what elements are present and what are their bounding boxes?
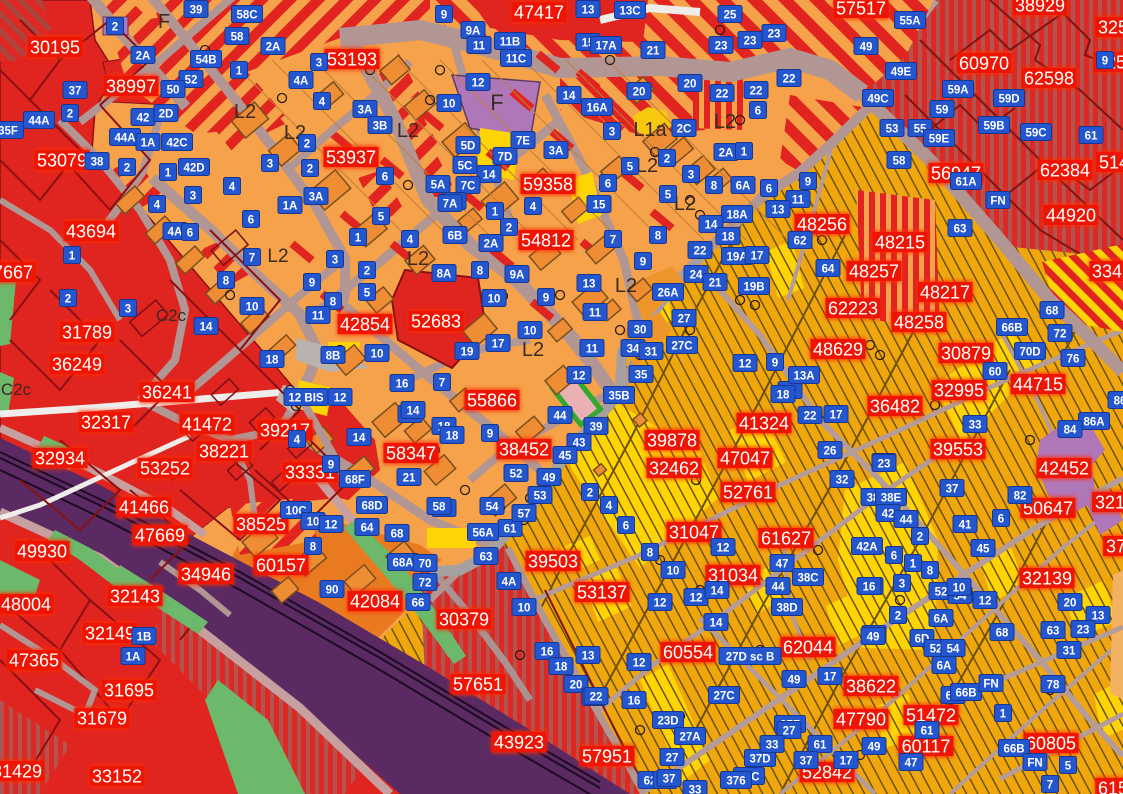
svg-text:53: 53 [886, 124, 899, 136]
svg-text:68: 68 [391, 529, 404, 541]
svg-text:49: 49 [860, 42, 873, 54]
svg-text:53: 53 [534, 491, 547, 503]
svg-text:55A: 55A [899, 16, 920, 28]
svg-text:31695: 31695 [104, 681, 154, 701]
svg-text:FN: FN [983, 679, 998, 691]
svg-text:6A: 6A [937, 661, 952, 673]
svg-text:44920: 44920 [1046, 206, 1096, 226]
svg-text:47417: 47417 [514, 3, 564, 23]
svg-text:18: 18 [266, 355, 279, 367]
svg-text:22: 22 [783, 74, 796, 86]
svg-text:376: 376 [726, 776, 745, 788]
svg-text:47365: 47365 [9, 651, 59, 671]
svg-text:10: 10 [443, 99, 456, 111]
svg-text:1: 1 [355, 233, 362, 245]
svg-text:49: 49 [788, 675, 801, 687]
svg-text:32139: 32139 [1022, 569, 1072, 589]
svg-text:2D: 2D [159, 109, 174, 121]
svg-text:5D: 5D [461, 141, 476, 153]
svg-text:35B: 35B [608, 391, 629, 403]
svg-text:36249: 36249 [52, 355, 102, 375]
svg-text:27: 27 [666, 753, 679, 765]
svg-text:10: 10 [488, 294, 501, 306]
svg-text:7A: 7A [443, 199, 458, 211]
svg-text:12: 12 [633, 658, 646, 670]
svg-text:60970: 60970 [959, 54, 1009, 74]
svg-text:2C: 2C [677, 124, 692, 136]
svg-text:13: 13 [582, 5, 595, 17]
svg-text:44A: 44A [28, 116, 49, 128]
svg-text:19: 19 [461, 347, 474, 359]
svg-text:52761: 52761 [723, 483, 773, 503]
svg-text:5C: 5C [458, 161, 473, 173]
svg-text:6: 6 [248, 215, 254, 227]
svg-text:1: 1 [165, 168, 172, 180]
svg-text:58: 58 [893, 156, 906, 168]
svg-text:3: 3 [125, 304, 131, 316]
svg-text:2: 2 [364, 266, 370, 278]
svg-text:2: 2 [112, 22, 118, 34]
svg-text:1A: 1A [126, 652, 141, 664]
svg-text:39503: 39503 [528, 552, 578, 572]
svg-text:45: 45 [977, 544, 990, 556]
svg-text:9: 9 [328, 460, 334, 472]
svg-text:45: 45 [559, 451, 572, 463]
svg-text:32149: 32149 [85, 624, 135, 644]
svg-text:7667: 7667 [0, 263, 33, 283]
svg-text:14: 14 [563, 91, 576, 103]
svg-text:9: 9 [441, 10, 447, 22]
svg-text:20: 20 [570, 680, 583, 692]
svg-text:68A: 68A [392, 558, 413, 570]
svg-text:6A: 6A [736, 181, 751, 193]
svg-text:8B: 8B [326, 351, 341, 363]
svg-text:15: 15 [593, 200, 606, 212]
svg-text:10: 10 [518, 603, 531, 615]
svg-text:1B: 1B [137, 632, 152, 644]
svg-text:61: 61 [814, 740, 827, 752]
svg-text:8: 8 [647, 548, 654, 560]
svg-text:14: 14 [407, 406, 420, 418]
svg-text:41472: 41472 [182, 415, 232, 435]
svg-text:FN: FN [1027, 758, 1042, 770]
svg-text:10: 10 [953, 583, 966, 595]
svg-text:1: 1 [69, 251, 76, 263]
svg-text:2A: 2A [266, 42, 281, 54]
svg-text:10: 10 [524, 326, 537, 338]
svg-text:F: F [158, 11, 170, 33]
svg-text:12: 12 [717, 543, 730, 555]
svg-text:11: 11 [589, 308, 602, 320]
svg-text:61: 61 [1085, 131, 1098, 143]
svg-text:58: 58 [231, 32, 244, 44]
svg-text:L2: L2 [234, 101, 256, 123]
svg-text:49: 49 [543, 473, 556, 485]
svg-text:7: 7 [610, 235, 616, 247]
svg-text:17: 17 [830, 410, 843, 422]
svg-text:27C: 27C [713, 691, 734, 703]
svg-text:3: 3 [332, 255, 338, 267]
svg-text:64: 64 [361, 523, 374, 535]
svg-text:31: 31 [645, 347, 658, 359]
svg-text:34946: 34946 [181, 565, 231, 585]
svg-text:48215: 48215 [875, 233, 925, 253]
svg-text:32143: 32143 [110, 587, 160, 607]
svg-text:10: 10 [667, 566, 680, 578]
svg-text:11: 11 [586, 344, 599, 356]
svg-text:27: 27 [678, 314, 691, 326]
svg-text:3342: 3342 [1092, 262, 1123, 282]
svg-text:31: 31 [1063, 646, 1076, 658]
svg-text:7: 7 [439, 378, 445, 390]
svg-text:48257: 48257 [849, 262, 899, 282]
svg-text:70: 70 [419, 559, 432, 571]
svg-text:13C: 13C [619, 6, 640, 18]
svg-text:60554: 60554 [663, 643, 713, 663]
svg-text:25: 25 [724, 10, 737, 22]
svg-text:9: 9 [772, 358, 778, 370]
svg-text:17: 17 [840, 756, 853, 768]
svg-text:47: 47 [776, 559, 789, 571]
svg-text:59D: 59D [998, 94, 1019, 106]
svg-text:8: 8 [310, 542, 317, 554]
svg-text:62598: 62598 [1024, 69, 1074, 89]
svg-text:18A: 18A [726, 210, 747, 222]
svg-text:8: 8 [655, 231, 662, 243]
svg-text:6: 6 [891, 551, 897, 563]
svg-text:62044: 62044 [783, 638, 833, 658]
svg-text:48004: 48004 [1, 595, 51, 615]
svg-text:2: 2 [304, 139, 310, 151]
svg-text:68F: 68F [345, 475, 365, 487]
svg-text:2: 2 [895, 611, 901, 623]
svg-text:84: 84 [1064, 425, 1077, 437]
svg-text:12: 12 [573, 371, 586, 383]
svg-text:33152: 33152 [92, 767, 142, 787]
svg-text:21: 21 [647, 46, 660, 58]
svg-text:2: 2 [506, 223, 512, 235]
svg-text:11C: 11C [506, 54, 526, 66]
svg-text:66B: 66B [1001, 323, 1022, 335]
svg-text:33: 33 [689, 785, 702, 794]
svg-text:6: 6 [623, 521, 629, 533]
svg-text:6: 6 [755, 106, 761, 118]
svg-text:31679: 31679 [77, 709, 127, 729]
svg-text:68D: 68D [361, 501, 382, 513]
svg-text:2: 2 [67, 109, 73, 121]
svg-text:18: 18 [777, 390, 790, 402]
svg-text:2: 2 [664, 154, 670, 166]
svg-text:54: 54 [486, 502, 499, 514]
svg-text:3A: 3A [309, 192, 324, 204]
svg-text:66B: 66B [955, 688, 976, 700]
svg-text:57: 57 [518, 509, 531, 521]
svg-text:42A: 42A [856, 542, 877, 554]
svg-text:L2: L2 [615, 275, 637, 297]
svg-text:11: 11 [792, 195, 805, 207]
svg-text:54B: 54B [195, 55, 216, 67]
svg-text:7D: 7D [498, 152, 513, 164]
svg-text:1: 1 [492, 207, 499, 219]
svg-text:58C: 58C [236, 10, 257, 22]
svg-text:9: 9 [487, 429, 493, 441]
svg-text:86A: 86A [1083, 417, 1104, 429]
svg-text:3: 3 [688, 170, 694, 182]
svg-text:30: 30 [634, 325, 647, 337]
svg-text:48629: 48629 [813, 340, 863, 360]
svg-text:49930: 49930 [17, 542, 67, 562]
svg-text:38452: 38452 [499, 440, 549, 460]
svg-text:9: 9 [805, 177, 811, 189]
svg-text:17A: 17A [595, 41, 616, 53]
svg-text:9: 9 [1102, 56, 1108, 68]
svg-text:4A: 4A [502, 577, 517, 589]
svg-text:38: 38 [91, 157, 104, 169]
svg-text:38997: 38997 [106, 77, 156, 97]
svg-text:23: 23 [744, 36, 757, 48]
svg-text:514: 514 [1099, 153, 1123, 173]
svg-text:4: 4 [407, 235, 414, 247]
svg-text:32317: 32317 [81, 413, 131, 433]
svg-text:44: 44 [772, 582, 785, 594]
svg-text:44: 44 [900, 515, 913, 527]
svg-text:18: 18 [446, 431, 459, 443]
svg-text:9A: 9A [466, 26, 481, 38]
svg-text:27C: 27C [671, 341, 692, 353]
svg-text:31789: 31789 [62, 323, 112, 343]
svg-text:42084: 42084 [350, 592, 400, 612]
svg-text:27D sc B: 27D sc B [726, 652, 775, 664]
svg-text:23: 23 [1077, 625, 1090, 637]
svg-text:17: 17 [492, 339, 505, 351]
svg-text:55866: 55866 [467, 391, 517, 411]
svg-text:20: 20 [1064, 598, 1077, 610]
svg-text:13: 13 [582, 651, 595, 663]
svg-text:63: 63 [480, 552, 493, 564]
svg-text:61627: 61627 [761, 529, 811, 549]
svg-text:4A: 4A [294, 76, 309, 88]
svg-text:57951: 57951 [582, 747, 632, 767]
svg-text:44A: 44A [114, 133, 135, 145]
svg-text:3: 3 [267, 159, 273, 171]
svg-text:86: 86 [1114, 396, 1123, 408]
svg-text:42854: 42854 [340, 315, 390, 335]
svg-text:32995: 32995 [934, 381, 984, 401]
svg-text:38E: 38E [881, 493, 902, 505]
svg-text:5A: 5A [431, 180, 446, 192]
svg-text:30379: 30379 [439, 610, 489, 630]
svg-text:2: 2 [65, 294, 71, 306]
svg-text:9: 9 [309, 278, 315, 290]
svg-text:7C: 7C [461, 181, 476, 193]
svg-text:11B: 11B [500, 37, 520, 49]
svg-text:5: 5 [665, 190, 672, 202]
svg-text:36482: 36482 [870, 397, 920, 417]
svg-text:50: 50 [167, 85, 180, 97]
svg-text:32462: 32462 [649, 459, 699, 479]
svg-text:59B: 59B [983, 121, 1004, 133]
svg-text:16: 16 [541, 647, 554, 659]
svg-text:1A: 1A [283, 201, 298, 213]
svg-text:9: 9 [640, 257, 646, 269]
svg-text:38221: 38221 [199, 442, 249, 462]
svg-text:53079: 53079 [37, 151, 87, 171]
svg-text:47: 47 [905, 758, 918, 770]
svg-text:57651: 57651 [453, 675, 503, 695]
svg-text:66: 66 [412, 598, 425, 610]
svg-text:23: 23 [715, 41, 728, 53]
svg-text:62: 62 [794, 236, 807, 248]
svg-text:38525: 38525 [236, 515, 286, 535]
svg-text:60805: 60805 [1026, 734, 1076, 754]
svg-text:11: 11 [473, 41, 486, 53]
svg-text:39: 39 [590, 422, 603, 434]
svg-text:2: 2 [124, 163, 130, 175]
svg-text:9: 9 [543, 293, 549, 305]
svg-text:16: 16 [396, 379, 409, 391]
svg-text:4: 4 [154, 200, 161, 212]
svg-text:54: 54 [947, 644, 960, 656]
svg-text:37: 37 [69, 86, 82, 98]
svg-text:16: 16 [628, 696, 641, 708]
svg-text:5: 5 [1065, 761, 1072, 773]
svg-text:2A: 2A [484, 239, 499, 251]
svg-text:17: 17 [824, 672, 837, 684]
svg-text:61A: 61A [955, 177, 976, 189]
svg-text:32: 32 [836, 475, 849, 487]
svg-text:1: 1 [741, 147, 748, 159]
svg-text:16: 16 [863, 582, 876, 594]
svg-text:56A: 56A [472, 528, 493, 540]
svg-text:43923: 43923 [494, 733, 544, 753]
svg-text:3: 3 [899, 579, 905, 591]
svg-text:38D: 38D [776, 603, 797, 615]
svg-text:12: 12 [334, 393, 347, 405]
svg-text:48258: 48258 [894, 313, 944, 333]
svg-text:30879: 30879 [941, 344, 991, 364]
svg-text:14: 14 [200, 322, 213, 334]
svg-text:14: 14 [711, 586, 724, 598]
svg-text:53193: 53193 [327, 50, 377, 70]
svg-text:76: 76 [1067, 354, 1080, 366]
svg-text:9A: 9A [510, 270, 525, 282]
svg-text:2: 2 [917, 532, 923, 544]
svg-text:37: 37 [800, 756, 813, 768]
svg-text:44: 44 [554, 411, 567, 423]
svg-text:13: 13 [583, 279, 596, 291]
svg-text:23D: 23D [657, 716, 678, 728]
svg-text:31429: 31429 [0, 762, 42, 782]
svg-text:12: 12 [979, 596, 992, 608]
svg-text:7E: 7E [516, 136, 530, 148]
svg-text:90: 90 [326, 585, 339, 597]
svg-text:2: 2 [587, 488, 593, 500]
svg-text:21: 21 [403, 473, 416, 485]
svg-text:27A: 27A [679, 732, 700, 744]
svg-text:L2: L2 [714, 111, 736, 133]
svg-text:52683: 52683 [411, 312, 461, 332]
svg-text:4: 4 [319, 97, 326, 109]
svg-text:37D: 37D [749, 754, 770, 766]
svg-text:12 BIS: 12 BIS [288, 393, 323, 405]
svg-text:32934: 32934 [35, 449, 85, 469]
svg-text:49: 49 [867, 632, 880, 644]
svg-text:42C: 42C [166, 138, 187, 150]
svg-text:1: 1 [910, 559, 917, 571]
svg-text:3: 3 [190, 191, 196, 203]
svg-text:3: 3 [316, 58, 322, 70]
svg-text:5: 5 [378, 212, 385, 224]
svg-text:6: 6 [382, 172, 388, 184]
svg-text:C2c: C2c [1, 380, 32, 399]
svg-text:8: 8 [330, 297, 337, 309]
svg-text:19A: 19A [726, 252, 747, 264]
svg-text:47790: 47790 [836, 710, 886, 730]
svg-text:18: 18 [555, 662, 568, 674]
svg-text:4: 4 [530, 202, 537, 214]
svg-text:6A: 6A [934, 614, 949, 626]
svg-text:47669: 47669 [135, 526, 185, 546]
svg-text:41: 41 [959, 520, 972, 532]
svg-text:6B: 6B [448, 231, 463, 243]
svg-text:35F: 35F [0, 126, 18, 138]
svg-text:43694: 43694 [66, 222, 116, 242]
svg-text:68: 68 [1046, 306, 1059, 318]
svg-text:11: 11 [312, 311, 325, 323]
svg-text:2A: 2A [136, 51, 151, 63]
svg-text:59A: 59A [947, 85, 968, 97]
svg-text:321: 321 [1095, 493, 1123, 513]
svg-text:19B: 19B [743, 282, 764, 294]
svg-text:13A: 13A [793, 371, 814, 383]
svg-text:49: 49 [868, 742, 881, 754]
svg-text:58: 58 [433, 502, 446, 514]
svg-text:70D: 70D [1019, 347, 1040, 359]
svg-text:72: 72 [419, 578, 432, 590]
svg-text:57517: 57517 [836, 0, 886, 19]
svg-text:8A: 8A [437, 269, 452, 281]
svg-text:6: 6 [187, 228, 193, 240]
svg-text:38622: 38622 [846, 677, 896, 697]
svg-text:14: 14 [710, 618, 723, 630]
svg-text:27: 27 [783, 726, 796, 738]
svg-text:54812: 54812 [521, 231, 571, 251]
svg-text:20: 20 [684, 79, 697, 91]
svg-text:22: 22 [694, 246, 707, 258]
svg-text:44715: 44715 [1013, 375, 1063, 395]
svg-text:59358: 59358 [523, 175, 573, 195]
svg-text:2A: 2A [719, 148, 734, 160]
svg-text:12: 12 [472, 78, 485, 90]
svg-text:42: 42 [882, 509, 895, 521]
svg-text:12: 12 [325, 520, 338, 532]
svg-text:82: 82 [1014, 491, 1027, 503]
svg-text:12: 12 [690, 593, 703, 605]
svg-text:7: 7 [249, 253, 255, 265]
svg-text:17: 17 [751, 251, 764, 263]
svg-text:14: 14 [483, 170, 496, 182]
svg-text:L2: L2 [674, 193, 696, 215]
svg-text:68: 68 [996, 628, 1009, 640]
svg-text:L1a: L1a [633, 119, 667, 141]
svg-text:1: 1 [1000, 709, 1007, 721]
svg-text:3B: 3B [373, 121, 388, 133]
svg-text:8: 8 [711, 181, 718, 193]
svg-text:3A: 3A [358, 105, 373, 117]
svg-text:C2c: C2c [156, 306, 187, 325]
svg-text:60157: 60157 [256, 556, 306, 576]
svg-text:72: 72 [1054, 329, 1067, 341]
